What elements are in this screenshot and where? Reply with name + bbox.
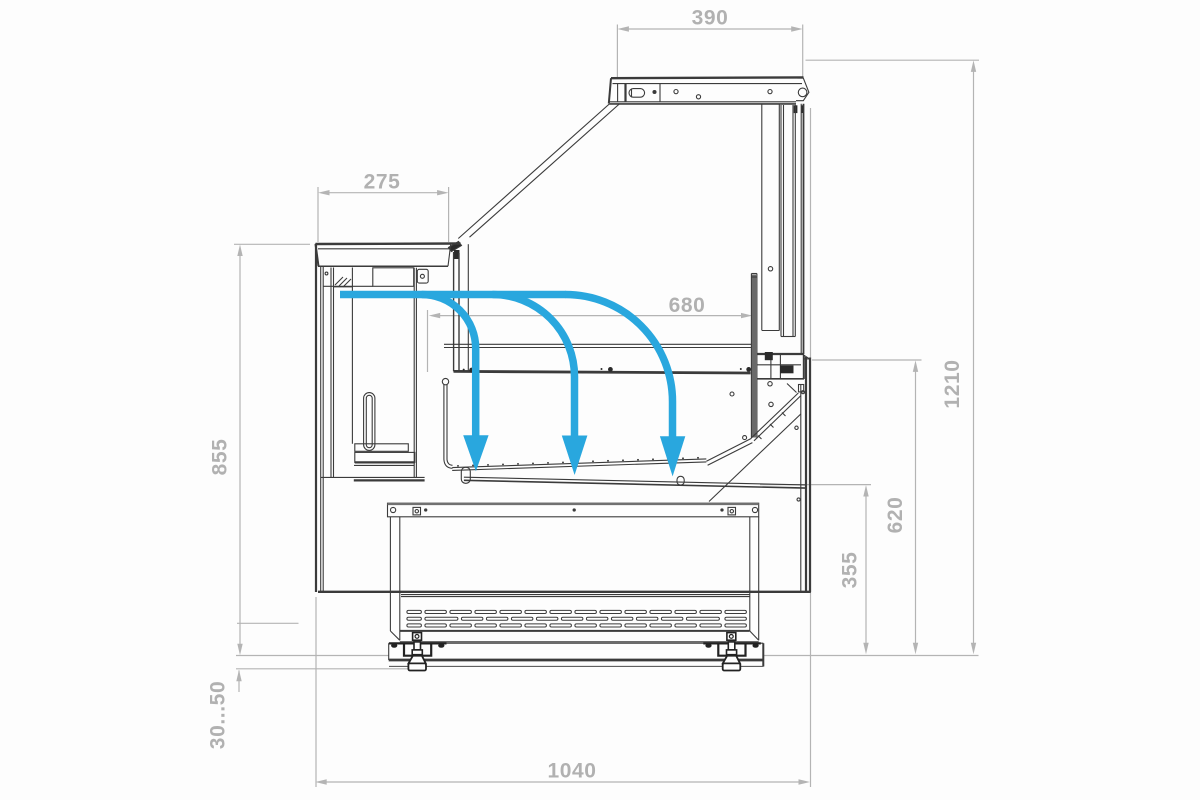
svg-text:355: 355 [839, 552, 862, 589]
svg-text:275: 275 [364, 171, 401, 194]
svg-text:620: 620 [884, 497, 907, 534]
svg-text:390: 390 [692, 7, 729, 30]
svg-text:680: 680 [669, 294, 706, 317]
svg-text:855: 855 [209, 439, 232, 476]
svg-text:1210: 1210 [941, 359, 964, 408]
svg-text:1040: 1040 [547, 760, 596, 783]
svg-text:30...50: 30...50 [207, 681, 230, 749]
